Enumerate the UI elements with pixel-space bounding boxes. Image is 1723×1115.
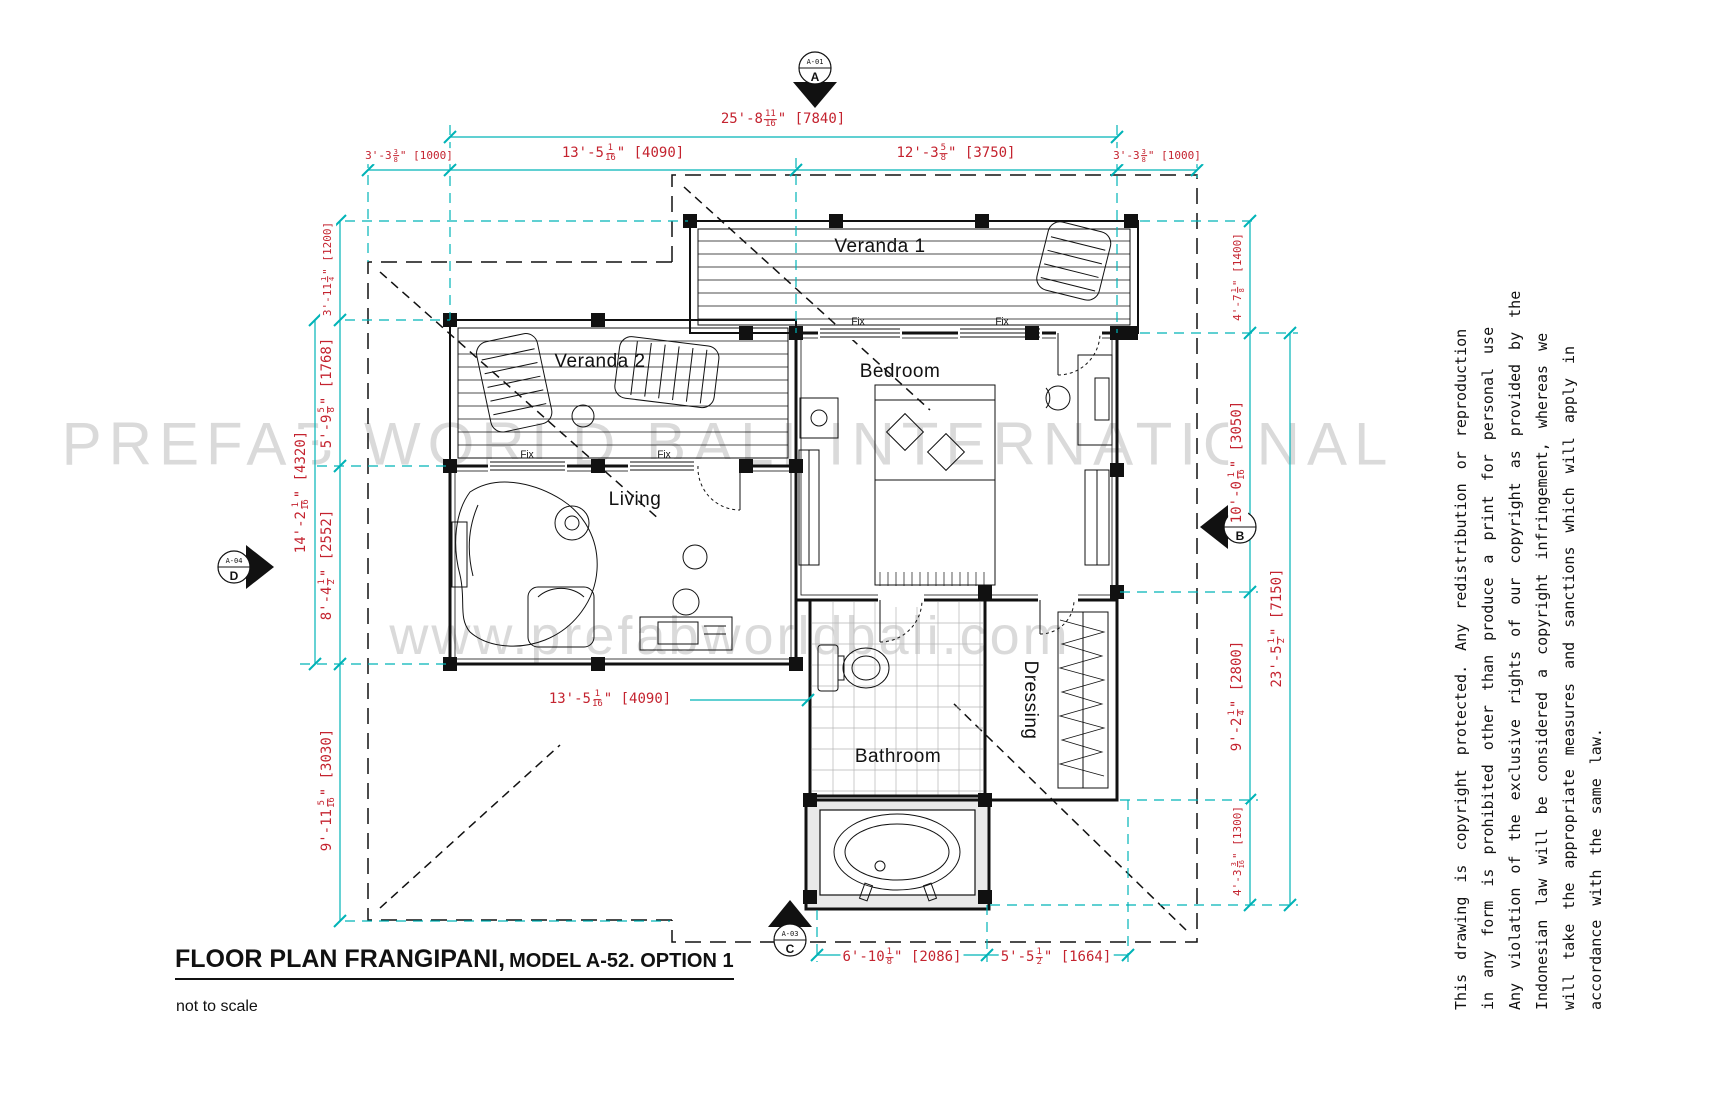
dim-left-living-depth: 8'-412" [2552] [318,508,338,623]
floor-plan-sheet: PREFAB WORLD BALI INTERNATIONAL www.pref… [0,0,1723,1115]
title-block: FLOOR PLAN FRANGIPANI,MODEL A-52. OPTION… [175,945,734,980]
window-label-fix-4: Fix [657,450,670,461]
svg-text:A-03: A-03 [782,930,799,938]
lounge-chair-v1 [1034,219,1113,302]
room-label-veranda2: Veranda 2 [554,351,645,373]
dim-right-bedroom-depth: 10'-0116" [3050] [1228,399,1248,525]
bedroom-desk [1046,355,1112,445]
dim-top-total: 25'-81116" [7840] [719,110,847,130]
dim-right-total: 23'-512" [7150] [1268,567,1288,690]
marker-left: A-04 D [218,545,274,589]
drawing-model: MODEL A-52. OPTION 1 [509,950,733,972]
dim-right-bath-depth: 9'-214" [2800] [1228,639,1248,754]
nightstand [800,398,838,438]
dim-top-seg-living: 13'-5116" [4090] [560,144,686,164]
dimension-ticks [309,131,1296,961]
svg-text:A-04: A-04 [226,557,243,565]
round-table [555,506,589,540]
window-label-fix-1: Fix [851,317,864,328]
copyright-line: will take the appropriate measures and s… [1556,180,1583,1010]
veranda2-deck [450,320,796,466]
copyright-notice: This drawing is copyright protected. Any… [1448,180,1612,1010]
roof-overhang-outline [368,175,1197,942]
dim-bottom-tub-width: 6'-1018" [2086] [841,948,964,968]
svg-text:C: C [786,942,795,956]
dim-left-veranda-offset: 3'-1114" [1200] [320,220,336,318]
dim-top-right-offset: 3'-338" [1000] [1111,148,1203,164]
svg-text:B: B [1236,529,1245,543]
svg-text:A: A [811,70,820,84]
room-label-bedroom: Bedroom [860,361,941,383]
dim-bottom-dressing-width: 5'-512" [1664] [999,948,1114,968]
dim-top-seg-bedroom: 12'-358" [3750] [895,144,1018,164]
living-cabinet [452,522,467,587]
copyright-line: Any violation of the exclusive rights of… [1502,180,1529,1010]
window-label-fix-3: Fix [520,450,533,461]
elevation-markers: A-01 A A-02 B A-03 C A-04 [218,52,1256,956]
bathtub-alcove [806,796,989,909]
dim-top-left-offset: 3'-338" [1000] [363,148,455,164]
marker-top: A-01 A [793,52,837,108]
window-label-fix-2: Fix [995,317,1008,328]
dim-right-veranda-depth: 4'-718" [1400] [1230,231,1246,323]
dim-left-bottom-offset: 9'-11516" [3030] [318,727,338,853]
copyright-line: accordance with the same law. [1583,180,1610,1010]
svg-text:A-01: A-01 [807,58,824,66]
wardrobe [1058,612,1108,788]
copyright-line: This drawing is copyright protected. Any… [1448,180,1475,1010]
copyright-line: in any form is prohibited other than pro… [1475,180,1502,1010]
dim-left-veranda-depth: 5'-958" [1768] [318,336,338,451]
bedroom-walls [796,333,1117,600]
room-label-living: Living [609,489,662,511]
room-label-bathroom: Bathroom [855,746,941,768]
bed [875,385,995,586]
copyright-line: Indonesian law will be considered a copy… [1529,180,1556,1010]
svg-text:D: D [230,569,239,583]
living-desk [640,589,732,650]
bathroom-tile-grid [812,602,983,798]
room-label-dressing: Dressing [1019,661,1041,740]
room-label-veranda1: Veranda 1 [834,236,925,258]
drawing-title: FLOOR PLAN FRANGIPANI, [175,945,505,973]
stool [683,545,707,569]
dim-mid-living-width: 13'-5116" [4090] [547,690,673,710]
dim-left-total: 14'-2116" [4320] [292,429,312,555]
armchair [528,587,594,647]
scale-note: not to scale [176,998,258,1016]
toilet [818,645,889,691]
dim-right-tub-depth: 4'-3316" [1300] [1230,804,1246,898]
side-table [572,405,594,427]
